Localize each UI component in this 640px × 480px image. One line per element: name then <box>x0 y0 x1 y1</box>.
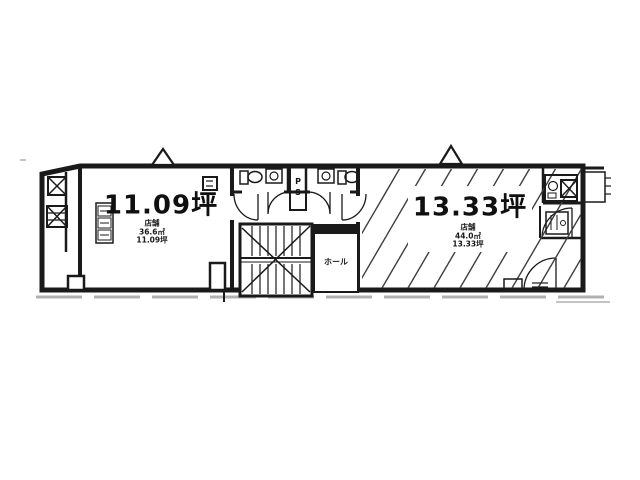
sink-icon-left <box>266 169 282 183</box>
shaft-x-icon-right <box>561 180 577 197</box>
right-room-sub-label: 店舗 44.0㎡ 13.33坪 <box>452 223 483 249</box>
left-room-sub-label: 店舗 36.6㎡ 11.09坪 <box>136 219 167 245</box>
floorplan-scan: 11.09坪 店舗 36.6㎡ 11.09坪 13.33坪 店舗 44.0㎡ 1… <box>0 0 640 480</box>
shaft-x-icon <box>48 177 66 195</box>
door-icon-stall-left <box>268 192 290 214</box>
service-shafts <box>47 177 67 227</box>
hall-top-wall <box>312 224 360 233</box>
left-room-area-label: 11.09坪 <box>104 185 218 222</box>
door-icon-left-room <box>234 194 258 220</box>
sink-icon-right <box>318 169 334 183</box>
right-room-tsubo: 13.33坪 <box>452 240 483 249</box>
floorplan-drawing <box>0 0 640 480</box>
right-room-area-label: 13.33坪 <box>413 187 527 224</box>
exterior-landing <box>583 172 611 202</box>
entrance-icon-left <box>152 149 174 165</box>
door-icon-stall-right <box>308 192 330 214</box>
stairwell <box>240 224 312 296</box>
door-icon-right-room <box>342 194 366 220</box>
toilet-icon-right <box>338 171 359 184</box>
left-room-tsubo: 11.09坪 <box>136 236 167 245</box>
hatched-shaft-icon <box>47 206 67 227</box>
pipe-space-label: PS <box>294 177 303 199</box>
toilet-icon-left <box>240 171 262 184</box>
entrance-icon-right <box>440 146 462 164</box>
hall-label: ホール <box>324 257 348 268</box>
entrance-markers <box>152 146 462 165</box>
